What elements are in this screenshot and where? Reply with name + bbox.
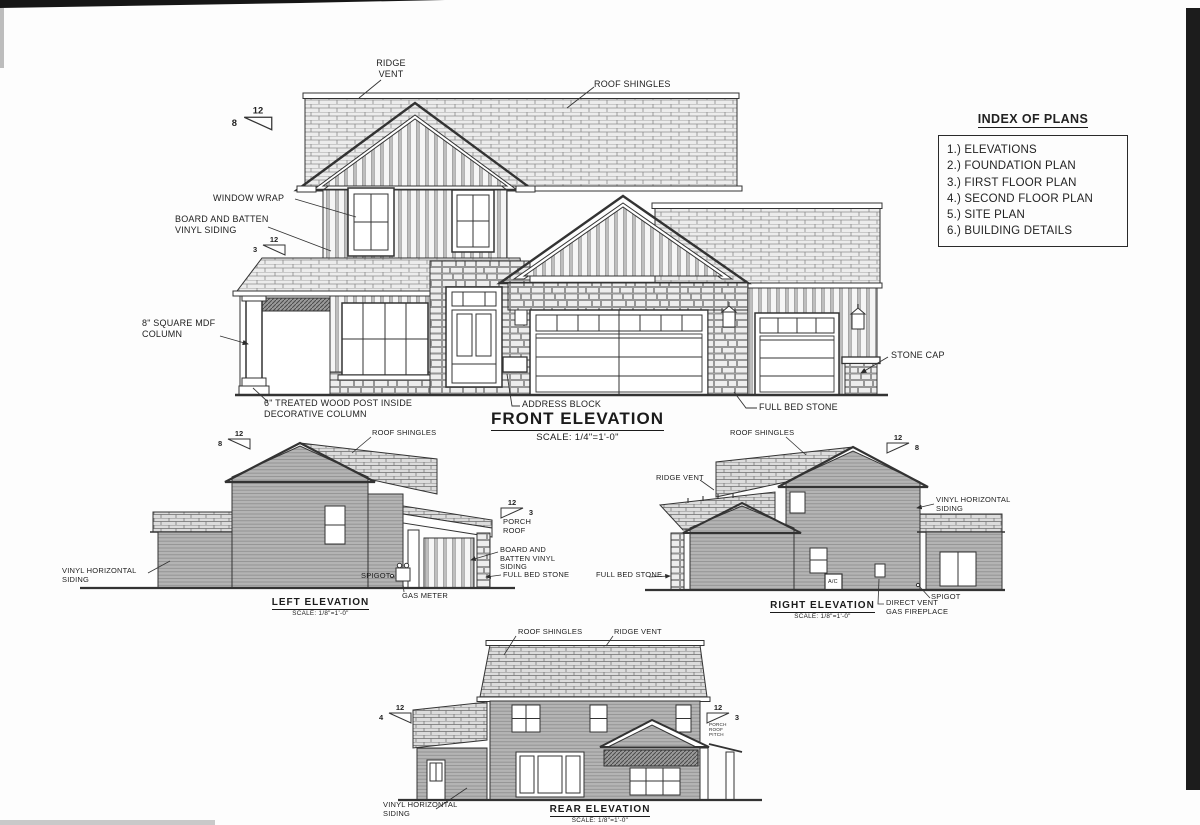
right-ridge-vent-label: RIDGE VENT [656, 474, 716, 483]
front-stone-cap-label: STONE CAP [891, 350, 971, 361]
left-roof-shingles-label: ROOF SHINGLES [372, 429, 452, 438]
rear-left-wing [413, 702, 487, 800]
left-full-bed-stone-label: FULL BED STONE [503, 571, 583, 580]
rear-porch-pitch-note: PORCH ROOF PITCH [709, 722, 735, 737]
right-wing-roof [920, 514, 1002, 532]
front-entry-door [446, 287, 502, 387]
front-mdf-column-label: 8" SQUARE MDF COLUMN [142, 318, 222, 339]
rear-elevation-title: REAR ELEVATION SCALE: 1/8"=1'-0" [520, 804, 680, 824]
rear-left-pitch-marker: 12 4 [388, 704, 412, 724]
front-ridge-vent-label: RIDGE VENT [368, 58, 414, 79]
rear-lower-window-group [516, 752, 584, 797]
front-garage-door-double [530, 310, 708, 395]
left-spigot-label: SPIGOT [361, 572, 391, 581]
front-wood-post-label: 6" TREATED WOOD POST INSIDE DECORATIVE C… [264, 398, 434, 419]
left-porch-roof-label: PORCH ROOF [503, 518, 539, 535]
left-gas-meter-label: GAS METER [402, 592, 462, 601]
right-direct-vent [875, 564, 885, 577]
front-elevation-title: FRONT ELEVATION SCALE: 1/4"=1'-0" [490, 409, 665, 443]
right-spigot-label: SPIGOT [931, 593, 961, 602]
rear-roof-shingles-label: ROOF SHINGLES [518, 628, 608, 637]
front-porch-pitch-marker: 12 3 [262, 236, 286, 256]
right-elevation-title: RIGHT ELEVATION SCALE: 1/8"=1'-0" [750, 600, 895, 620]
right-main-pitch-marker: 12 8 [886, 434, 910, 454]
rear-ridge-vent-label: RIDGE VENT [614, 628, 684, 637]
blueprint-sheet: INDEX OF PLANS 1.) ELEVATIONS 2.) FOUNDA… [0, 0, 1200, 825]
left-main-pitch-marker: 12 8 [227, 430, 251, 450]
front-porch [239, 296, 330, 395]
index-item: 3.) FIRST FLOOR PLAN [947, 175, 1119, 191]
index-item: 6.) BUILDING DETAILS [947, 223, 1119, 239]
left-wing-wall [158, 532, 232, 588]
index-list: 1.) ELEVATIONS 2.) FOUNDATION PLAN 3.) F… [938, 135, 1128, 247]
rear-porch-pitch-marker: 12 3 [706, 704, 730, 724]
front-first-floor-window [338, 303, 432, 380]
front-window-wrap-label: WINDOW WRAP [213, 193, 284, 204]
left-porch [408, 530, 490, 588]
front-elevation-drawing [220, 80, 888, 408]
left-porch-pitch-marker: 12 3 [500, 499, 524, 519]
index-item: 1.) ELEVATIONS [947, 142, 1119, 158]
right-roof-shingles-label: ROOF SHINGLES [730, 429, 810, 438]
front-roof-shingles-label: ROOF SHINGLES [594, 79, 704, 90]
right-full-bed-stone-label: FULL BED STONE [596, 571, 676, 580]
rear-vinyl-siding-label: VINYL HORIZONTAL SIDING [383, 801, 473, 818]
front-full-bed-stone-label: FULL BED STONE [759, 402, 869, 413]
right-ac-label: A/C [828, 579, 838, 585]
left-board-batten-label: BOARD AND BATTEN VINYL SIDING [500, 546, 572, 572]
front-board-batten-label: BOARD AND BATTEN VINYL SIDING [175, 214, 275, 235]
index-item: 5.) SITE PLAN [947, 207, 1119, 223]
index-item: 2.) FOUNDATION PLAN [947, 158, 1119, 174]
left-elevation-title: LEFT ELEVATION SCALE: 1/8"=1'-0" [248, 597, 393, 617]
front-ridge-vent-cap [303, 93, 739, 99]
left-wing-roof [153, 512, 232, 532]
front-stone-cap [842, 357, 880, 364]
right-vinyl-siding-label: VINYL HORIZONTAL SIDING [936, 496, 1026, 513]
index-of-plans: INDEX OF PLANS 1.) ELEVATIONS 2.) FOUNDA… [938, 112, 1128, 247]
index-title: INDEX OF PLANS [938, 112, 1128, 128]
front-garage-door-single [755, 313, 839, 395]
index-item: 4.) SECOND FLOOR PLAN [947, 191, 1119, 207]
right-upper-window [790, 492, 805, 513]
front-address-block [503, 357, 527, 372]
front-upper-window-left [348, 188, 394, 256]
rear-ridge-vent-cap [486, 641, 704, 646]
right-stone-base [671, 533, 684, 590]
front-upper-window-right [452, 190, 494, 252]
rear-main-roof [480, 645, 707, 697]
left-vinyl-siding-label: VINYL HORIZONTAL SIDING [62, 567, 152, 584]
front-main-pitch-marker: 12 8 [243, 106, 273, 131]
front-porch-column [246, 299, 262, 380]
right-elevation-drawing [645, 437, 1005, 604]
